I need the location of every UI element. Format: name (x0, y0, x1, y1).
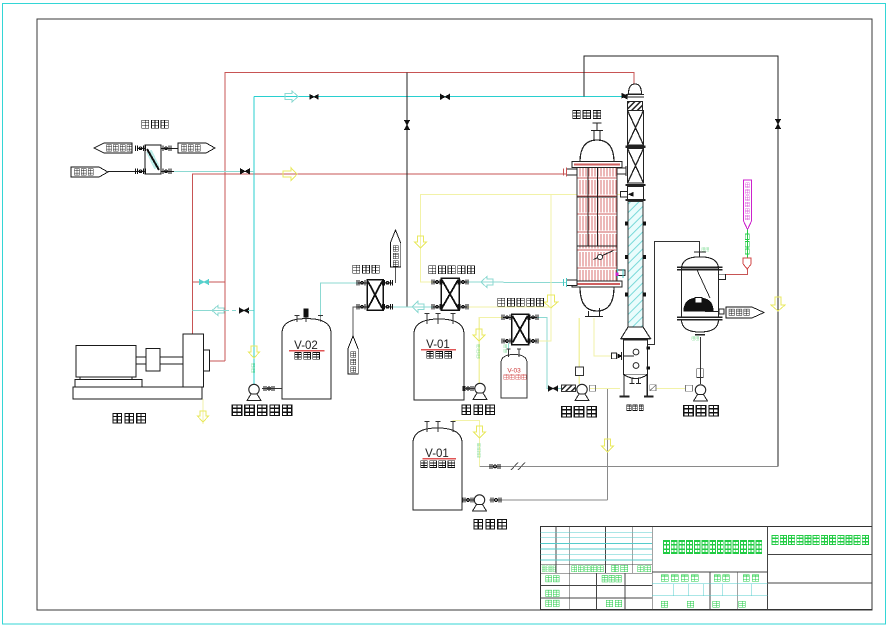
svg-text:V-03: V-03 (507, 368, 521, 375)
